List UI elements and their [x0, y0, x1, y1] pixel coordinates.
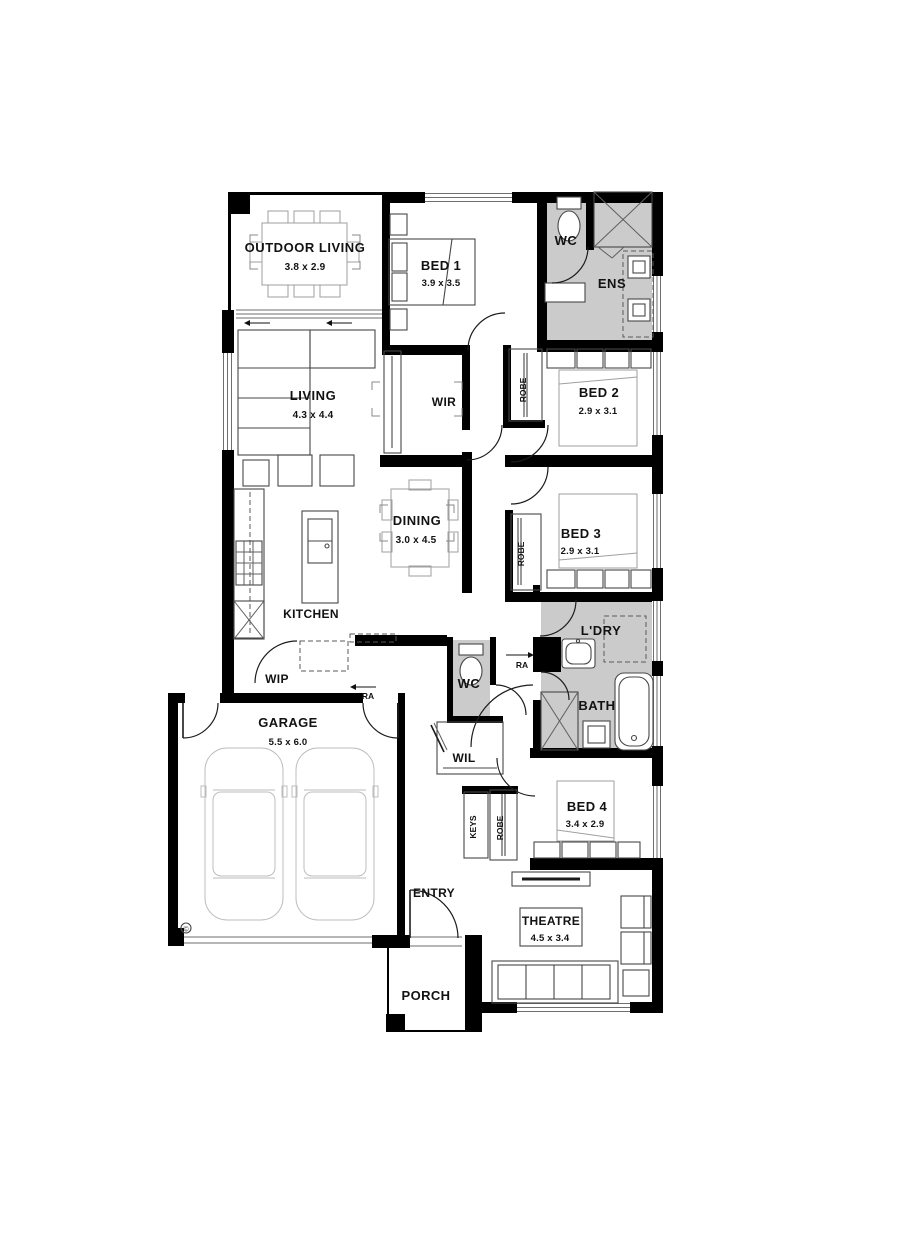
keys-label: KEYS — [468, 815, 478, 838]
pantry-bench — [300, 641, 348, 671]
wc-door-arc — [496, 685, 526, 715]
entry-label: ENTRY — [413, 886, 455, 900]
living-furniture — [238, 330, 375, 486]
laundry-label: L'DRY — [581, 623, 622, 638]
bed3-label: BED 3 — [561, 526, 601, 541]
theatre-dims: 4.5 x 3.4 — [531, 933, 570, 944]
bath-vanity — [583, 721, 610, 748]
wir-label: WIR — [432, 395, 456, 409]
floor-plan-page: OUTDOOR LIVING 3.8 x 2.9 BED 1 3.9 x 3.5… — [0, 0, 901, 1245]
return-air-arrows — [350, 652, 534, 690]
bed4-robe-label: ROBE — [495, 815, 505, 840]
garage-entry-door-arc — [183, 703, 218, 738]
wil-label: WIL — [452, 751, 475, 765]
return-air-1: RA — [362, 691, 374, 701]
bed2-dims: 2.9 x 3.1 — [579, 406, 618, 417]
outdoor-living-label: OUTDOOR LIVING — [245, 240, 366, 255]
wil-closet — [431, 722, 503, 774]
dining-label: DINING — [393, 513, 442, 528]
bedside-table — [390, 309, 407, 330]
bed4-label: BED 4 — [567, 799, 608, 814]
living-dims: 4.3 x 4.4 — [293, 410, 334, 421]
copyright-symbol: © — [183, 926, 189, 934]
bed3-robe-label: ROBE — [516, 541, 526, 566]
garage-house-door-arc — [363, 703, 398, 738]
return-air-2: RA — [516, 660, 528, 670]
armchair — [621, 896, 651, 928]
armchair — [621, 932, 651, 964]
toilet-ens — [557, 197, 581, 209]
kitchen-label: KITCHEN — [283, 607, 339, 621]
ottoman — [243, 460, 269, 486]
garage-label: GARAGE — [258, 715, 317, 730]
wil-outline — [437, 722, 503, 774]
bed2-label: BED 2 — [579, 385, 619, 400]
bed2-robe-label: ROBE — [518, 377, 528, 402]
dining-table — [391, 489, 449, 567]
hall-wc-label: WC — [458, 676, 481, 691]
theatre-sofa — [492, 961, 618, 1003]
dining-furniture — [382, 480, 458, 576]
ens-label: ENS — [598, 276, 626, 291]
dining-dims: 3.0 x 4.5 — [396, 535, 437, 546]
toilet-hall — [459, 644, 483, 655]
living-label: LIVING — [290, 388, 336, 403]
bed1-door-arc — [468, 313, 505, 350]
floor-plan-drawing: OUTDOOR LIVING 3.8 x 2.9 BED 1 3.9 x 3.5… — [0, 0, 901, 1245]
wip-label: WIP — [265, 672, 289, 686]
bed1-label: BED 1 — [421, 258, 461, 273]
wir-door-arc — [467, 425, 502, 460]
outdoor-living-dims: 3.8 x 2.9 — [285, 262, 326, 273]
car-1 — [201, 748, 287, 920]
garage-dims: 5.5 x 6.0 — [269, 737, 308, 748]
sliding-door — [236, 310, 382, 326]
theatre-furniture — [492, 872, 651, 1003]
ens-wc-label: WC — [555, 233, 578, 248]
theatre-label: THEATRE — [522, 914, 580, 928]
bath-label: BATH — [578, 698, 615, 713]
linen-niche — [545, 283, 585, 302]
bed4-dims: 3.4 x 2.9 — [566, 819, 605, 830]
bed3-door-arc — [511, 467, 548, 504]
bed3-dims: 2.9 x 3.1 — [561, 546, 600, 557]
car-2 — [292, 748, 378, 920]
bed1-dims: 3.9 x 3.5 — [422, 278, 461, 289]
bedside-table — [390, 214, 407, 235]
bathtub — [615, 673, 653, 750]
side-table — [623, 970, 649, 996]
porch-label: PORCH — [402, 988, 451, 1003]
